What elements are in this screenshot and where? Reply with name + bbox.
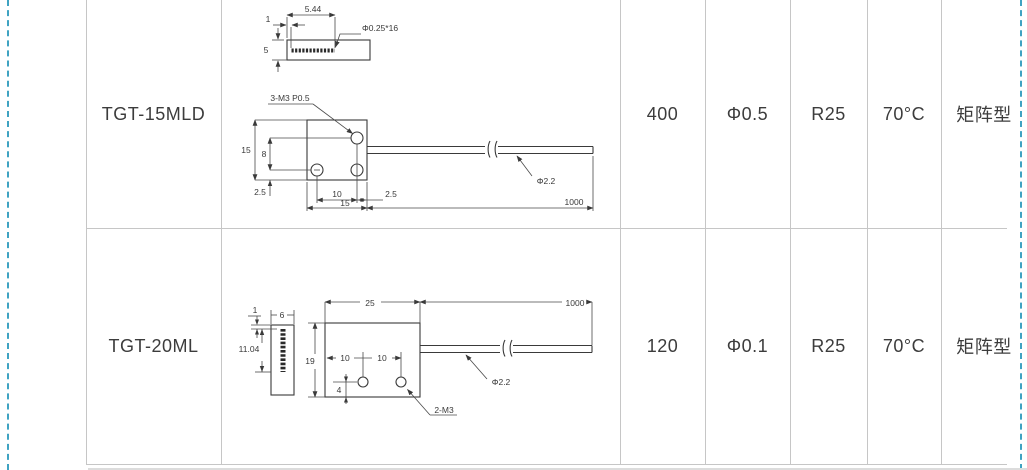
dim-label: 19 — [305, 356, 315, 366]
spec-radius: R25 — [790, 228, 867, 464]
dim-label: 10 — [377, 353, 387, 363]
dim-label: 2-M3 — [434, 405, 454, 415]
spec-distance: 120 — [620, 228, 705, 464]
dim-label: 25 — [365, 298, 375, 308]
spec-spot: Φ0.5 — [705, 0, 790, 228]
dim-label: 1000 — [566, 298, 585, 308]
spec-type: 矩阵型 — [941, 228, 1027, 464]
dim-label: 1 — [253, 305, 258, 315]
grid-hline-bottom — [86, 464, 1007, 465]
dim-label: 2.5 — [385, 189, 397, 199]
dim-label: 15 — [241, 145, 251, 155]
spec-distance: 400 — [620, 0, 705, 228]
model-name: TGT-20ML — [86, 228, 221, 464]
side-view-outline — [287, 40, 370, 60]
dim-label: 11.04 — [239, 344, 260, 354]
catalog-page: TGT-15MLD 400 Φ0.5 R25 70°C 矩阵型 TGT-20ML… — [0, 0, 1027, 470]
dim-label: 15 — [340, 198, 350, 208]
dim-label: 4 — [337, 385, 342, 395]
dim-label: 8 — [262, 149, 267, 159]
tgt-15mld-technical-drawing: 5.44 1 5 Φ0.25*16 3-M3 P0.5 15 8 2.5 10 … — [221, 0, 620, 228]
front-view-dimensions — [255, 104, 593, 211]
dim-label: 1000 — [565, 197, 584, 207]
model-name: TGT-15MLD — [86, 0, 221, 228]
dim-label: 2.5 — [254, 187, 266, 197]
dim-label: 5 — [264, 45, 269, 55]
dim-label: 10 — [340, 353, 350, 363]
side-view-outline — [325, 323, 592, 397]
tgt-20ml-technical-drawing: 1 6 11.04 25 1000 19 10 10 4 2-M3 Φ2.2 — [221, 228, 620, 464]
print-margin-dashed-left — [7, 0, 9, 470]
spec-type: 矩阵型 — [941, 0, 1027, 228]
spec-radius: R25 — [790, 0, 867, 228]
dim-label: 6 — [280, 310, 285, 320]
front-view-outline — [307, 120, 593, 180]
spec-temp: 70°C — [867, 228, 941, 464]
spec-temp: 70°C — [867, 0, 941, 228]
spec-spot: Φ0.1 — [705, 228, 790, 464]
dim-label: Φ2.2 — [492, 377, 511, 387]
front-view-outline — [271, 325, 294, 395]
dim-label: 5.44 — [305, 4, 322, 14]
side-view-dimensions — [308, 302, 592, 415]
side-view-dimensions — [272, 15, 361, 72]
dim-label: 1 — [266, 14, 271, 24]
dim-label: Φ2.2 — [537, 176, 556, 186]
dimension-labels: 5.44 1 5 Φ0.25*16 3-M3 P0.5 15 8 2.5 10 … — [241, 4, 583, 208]
dim-label: 3-M3 P0.5 — [270, 93, 309, 103]
dim-label: Φ0.25*16 — [362, 23, 398, 33]
